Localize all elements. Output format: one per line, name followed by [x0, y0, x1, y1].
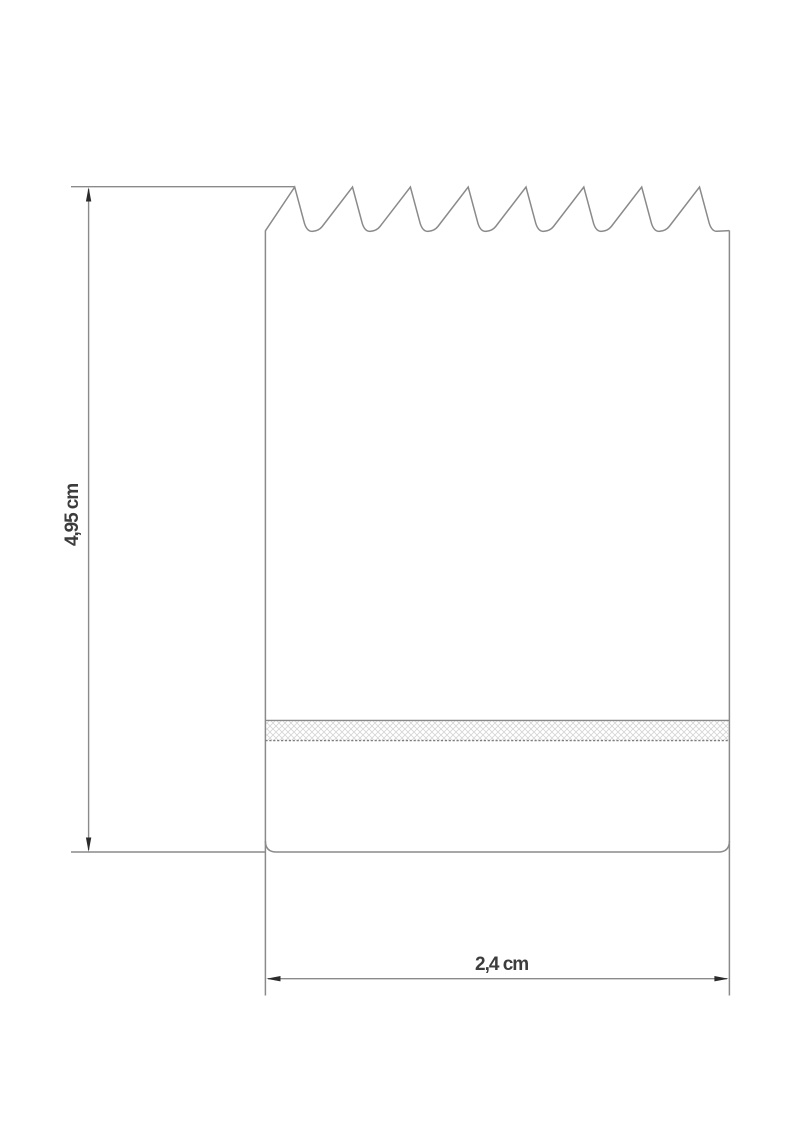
svg-text:4,95 cm: 4,95 cm [62, 484, 83, 546]
svg-text:2,4 cm: 2,4 cm [475, 954, 528, 975]
